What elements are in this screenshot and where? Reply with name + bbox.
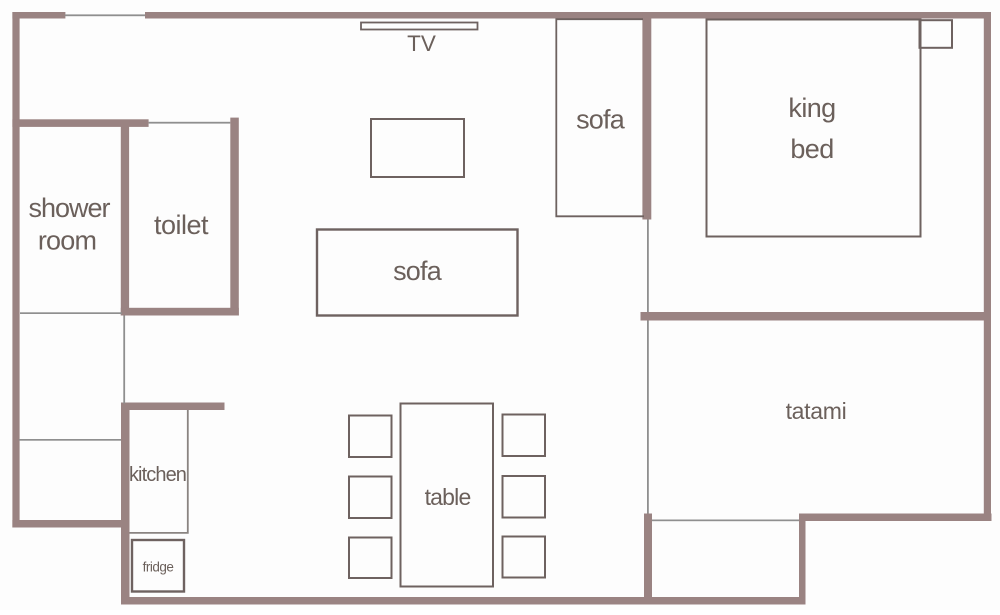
svg-text:sofa: sofa (393, 256, 443, 286)
svg-text:sofa: sofa (576, 105, 626, 135)
svg-text:kitchen: kitchen (129, 464, 186, 486)
svg-text:TV: TV (407, 31, 436, 56)
svg-text:fridge: fridge (143, 560, 174, 575)
svg-text:king: king (788, 93, 835, 123)
svg-text:toilet: toilet (154, 210, 209, 240)
svg-text:tatami: tatami (786, 398, 847, 424)
svg-text:shower: shower (28, 193, 110, 223)
svg-text:room: room (38, 226, 96, 256)
svg-text:bed: bed (790, 134, 833, 164)
svg-text:table: table (425, 484, 471, 510)
